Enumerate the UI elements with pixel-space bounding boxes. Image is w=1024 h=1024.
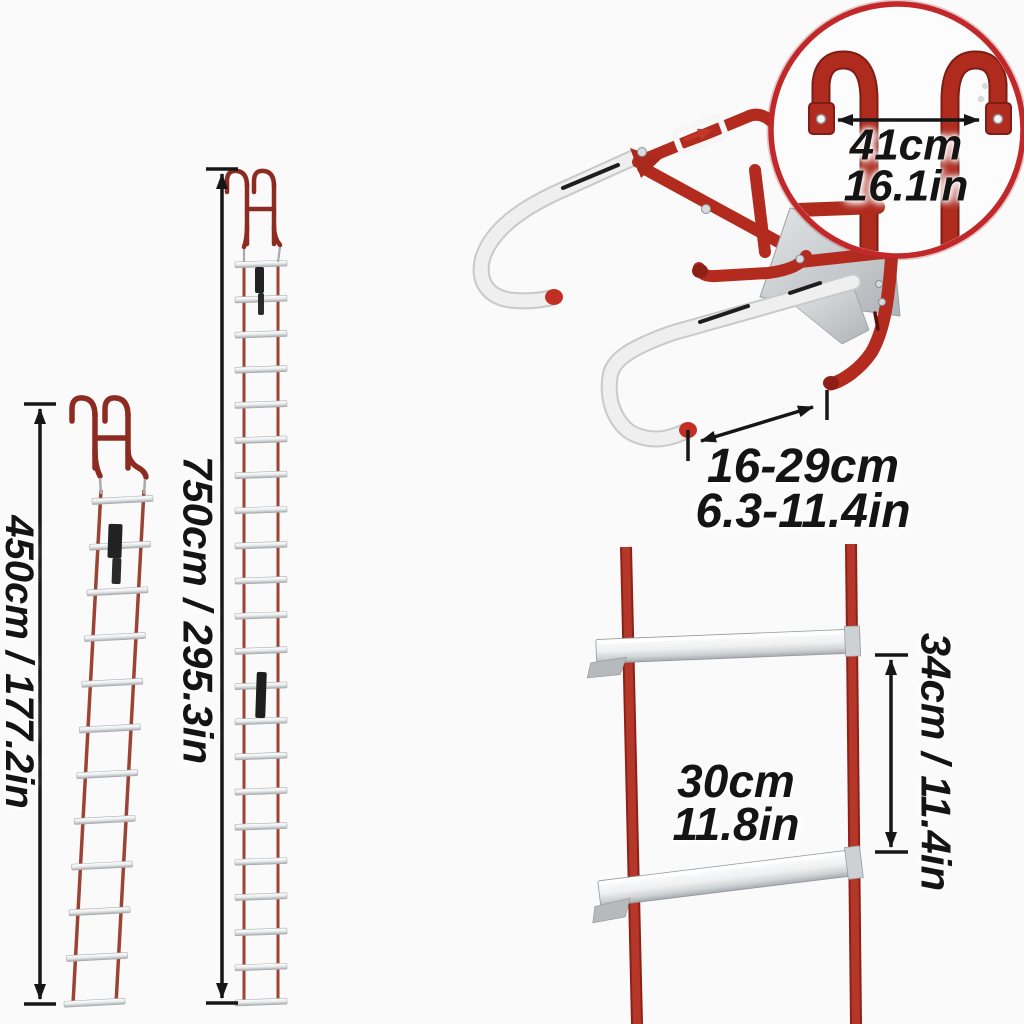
ladder-450-graphic bbox=[64, 398, 153, 1007]
bolt bbox=[796, 255, 804, 263]
rung-width-label: 30cm 11.8in bbox=[673, 760, 800, 846]
ladder-750-graphic bbox=[227, 171, 287, 1006]
standoff-depth-cm: 16-29cm bbox=[695, 444, 910, 489]
product-dimension-diagram: 450cm / 177.2in 750cm / 295.3in 41cm 16.… bbox=[0, 0, 1024, 1024]
bolt bbox=[879, 299, 886, 306]
ladder-750-links bbox=[244, 247, 280, 262]
ladder-750-hooks bbox=[227, 171, 280, 247]
leg-foot-cap bbox=[823, 376, 839, 390]
ladder-450-links bbox=[100, 478, 145, 494]
hook-span-label: 41cm 16.1in bbox=[844, 125, 969, 208]
standoff-red-tip bbox=[545, 289, 563, 305]
ladder-450-length-label: 450cm / 177.2in bbox=[0, 515, 37, 809]
hook-span-cm: 41cm bbox=[844, 125, 969, 166]
bolt bbox=[638, 148, 647, 157]
rung-width-in: 11.8in bbox=[673, 803, 800, 846]
bolt bbox=[702, 205, 711, 214]
rung-spacing-label: 34cm / 11.4in bbox=[916, 633, 955, 891]
ladder-450-strap bbox=[107, 524, 122, 584]
standoff-depth-label: 16-29cm 6.3-11.4in bbox=[695, 444, 910, 534]
stub-foot-cap bbox=[692, 264, 708, 278]
ladder-450-hooks bbox=[72, 398, 146, 477]
hook-span-in: 16.1in bbox=[844, 166, 969, 207]
bolt bbox=[876, 281, 883, 288]
rung-width-cm: 30cm bbox=[673, 760, 800, 803]
standoff-depth-in: 6.3-11.4in bbox=[695, 489, 910, 534]
ladder-750-length-label: 750cm / 295.3in bbox=[178, 456, 217, 764]
hook-hole bbox=[994, 115, 1003, 124]
rung-spacing-arrow bbox=[875, 655, 908, 852]
hook-hole bbox=[817, 115, 826, 124]
